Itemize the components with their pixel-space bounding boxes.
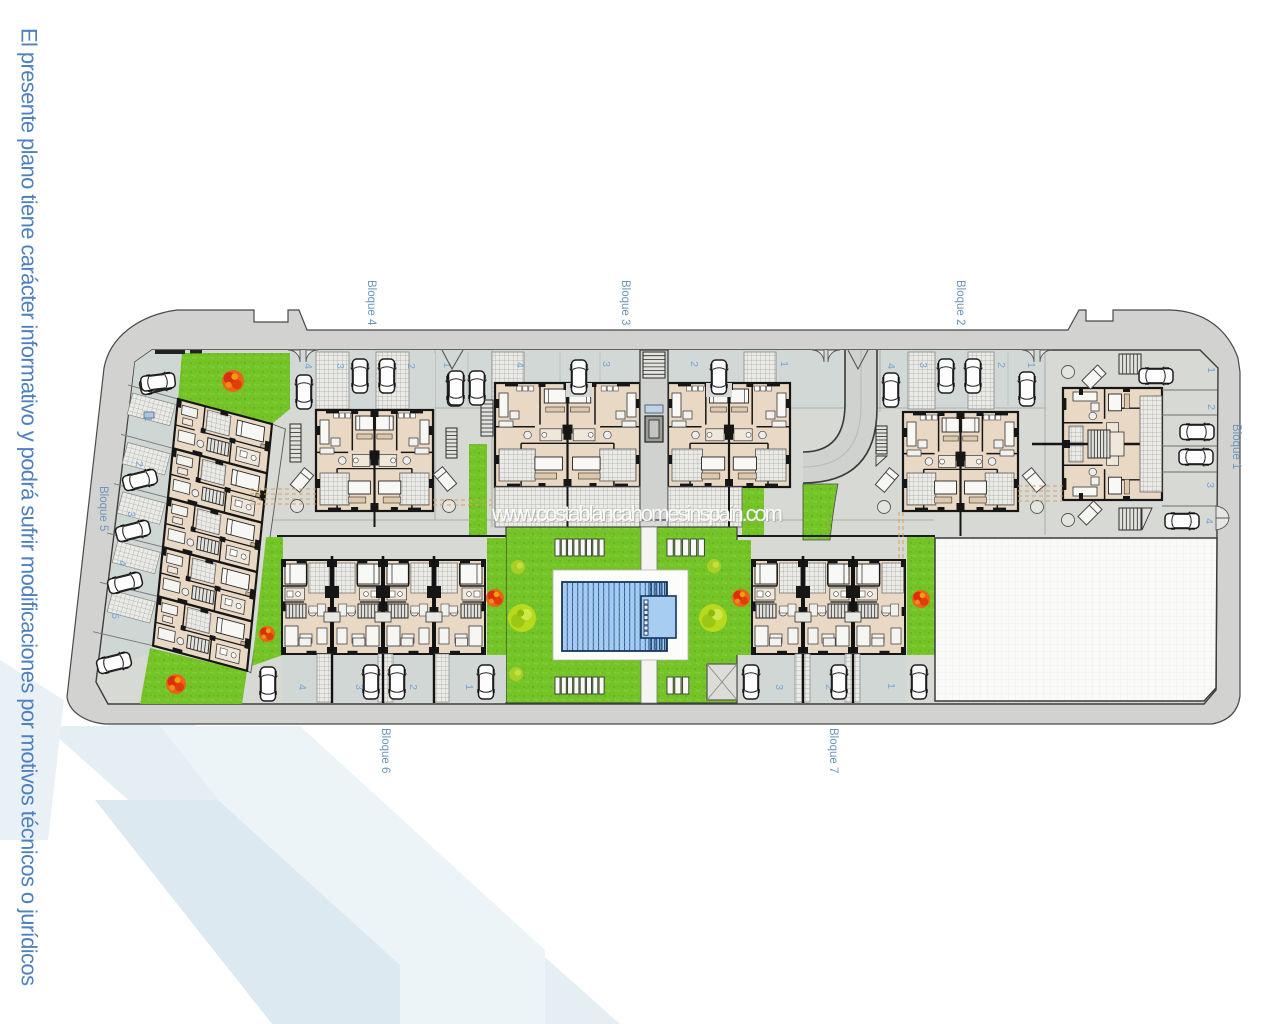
svg-text:4: 4 (302, 363, 314, 369)
svg-text:3: 3 (773, 684, 785, 690)
svg-text:5: 5 (109, 613, 121, 619)
svg-text:2: 2 (1205, 404, 1217, 410)
svg-text:4: 4 (514, 362, 526, 368)
svg-text:Bloque 5: Bloque 5 (97, 486, 109, 531)
svg-text:4: 4 (296, 684, 308, 690)
svg-text:4: 4 (885, 363, 897, 369)
svg-text:Bloque 7: Bloque 7 (827, 728, 839, 773)
svg-text:Bloque 6: Bloque 6 (379, 728, 391, 773)
svg-text:4: 4 (116, 560, 128, 566)
svg-text:2: 2 (995, 362, 1007, 368)
svg-text:3: 3 (334, 363, 346, 369)
svg-text:3: 3 (600, 361, 612, 367)
svg-text:1: 1 (1205, 367, 1217, 373)
svg-text:1: 1 (778, 361, 790, 367)
svg-text:1: 1 (463, 684, 475, 690)
svg-text:3: 3 (125, 511, 137, 517)
svg-text:2: 2 (407, 684, 419, 690)
svg-text:Bloque 4: Bloque 4 (365, 280, 377, 326)
svg-text:www.costablancahomesinspain.co: www.costablancahomesinspain.com (491, 501, 784, 526)
svg-text:Bloque 3: Bloque 3 (619, 280, 631, 325)
svg-text:3: 3 (917, 362, 929, 368)
svg-text:El presente plano tiene caráct: El presente plano tiene carácter informa… (17, 28, 42, 986)
svg-text:1: 1 (885, 683, 897, 689)
svg-text:2: 2 (405, 363, 417, 369)
svg-text:2: 2 (688, 361, 700, 367)
svg-text:2: 2 (133, 461, 145, 467)
svg-text:3: 3 (1204, 482, 1216, 488)
svg-text:1: 1 (1025, 362, 1037, 368)
svg-text:Bloque 2: Bloque 2 (954, 280, 966, 325)
svg-text:4: 4 (1203, 518, 1215, 524)
svg-text:Bloque 1: Bloque 1 (1230, 424, 1242, 469)
